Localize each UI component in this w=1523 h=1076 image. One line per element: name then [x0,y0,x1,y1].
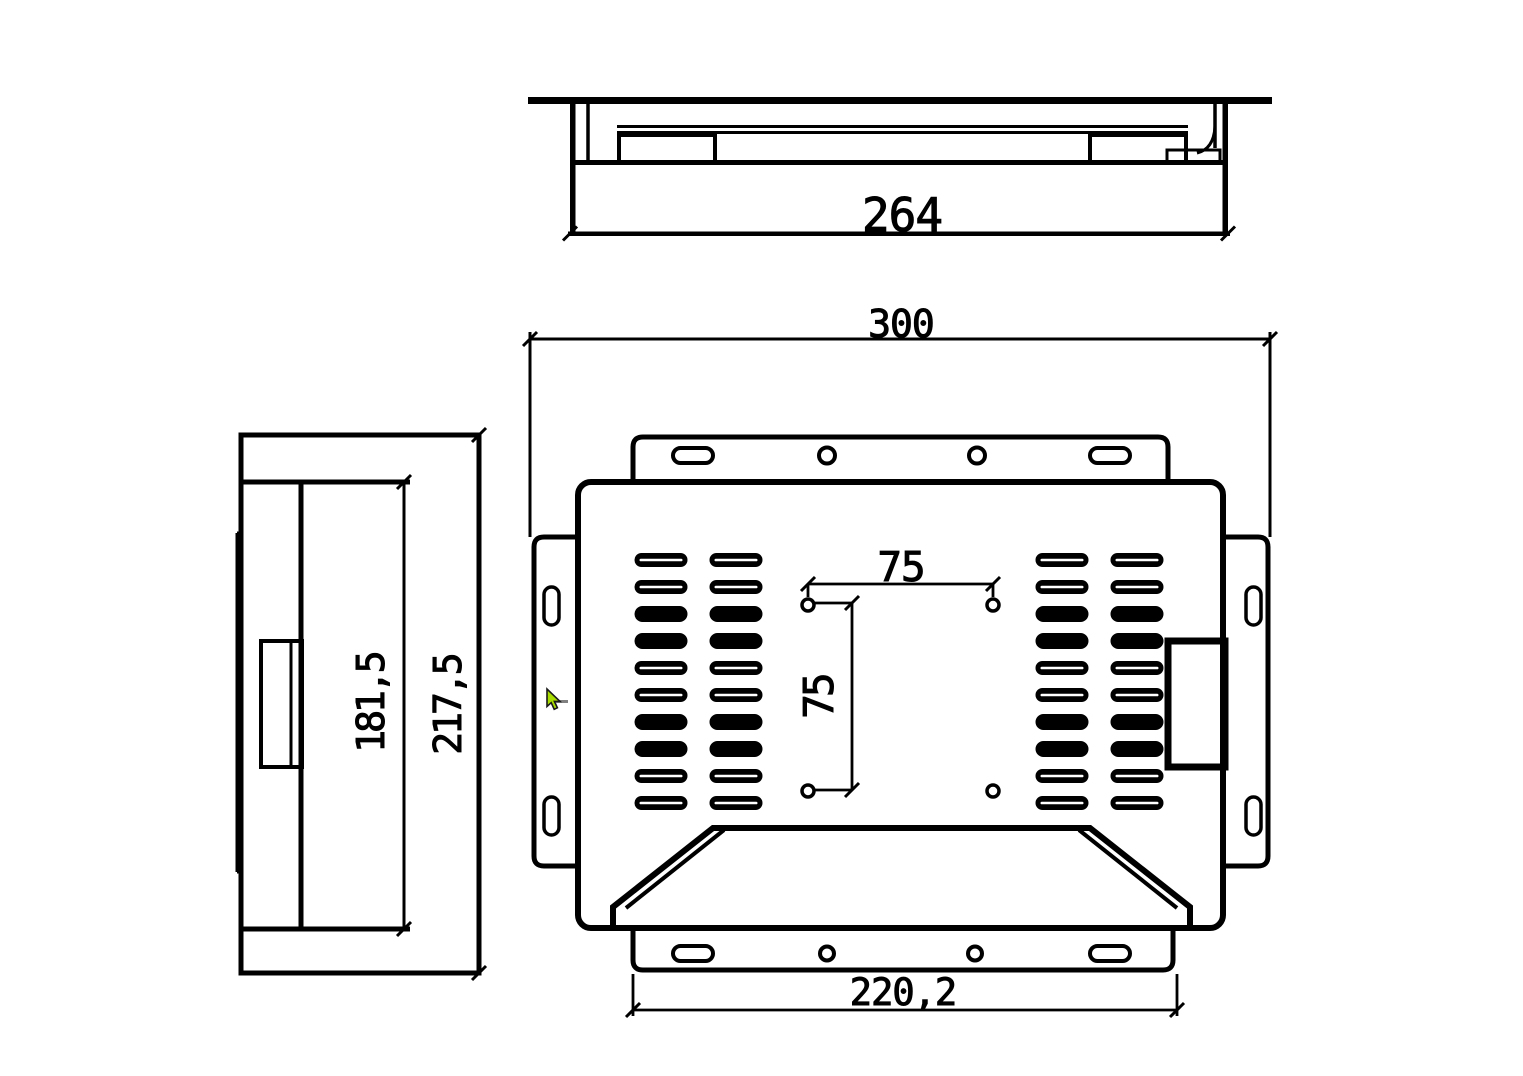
vent-slot [1036,607,1088,622]
vent-slot-inner [1040,801,1084,805]
vent-slot-inner [1115,558,1159,562]
dim-label-top-view-width: 264 [862,188,942,242]
vent-slot-inner [639,801,683,805]
left-ear-slot-top [544,587,559,625]
vesa-hole-top-left [802,599,814,611]
top-bracket-hole-left [819,448,835,464]
connector-box [1168,641,1225,767]
bottom-bracket-hole-right [968,947,982,961]
stand-bend-line-right [1079,830,1177,908]
vent-slot-inner [714,693,758,697]
vent-slot-inner [714,666,758,670]
top-bracket-slot-right [1090,448,1130,463]
vent-slot-inner [1115,693,1159,697]
vesa-hole-bottom-right [987,785,999,797]
rear-view: 300 75 75 [530,302,1270,1016]
vent-slot [635,607,687,622]
vent-slot-inner [1115,801,1159,805]
dim-label-overall-height: 217,5 [426,655,470,755]
vent-slot-inner [1115,585,1159,589]
cursor-icon [547,689,568,709]
vent-slot [635,715,687,730]
vent-slot-inner [639,558,683,562]
vent-slot-inner [1040,774,1084,778]
vent-slot-inner [1040,558,1084,562]
technical-drawing-canvas: 264 300 75 [0,0,1523,1076]
vent-slot [1111,742,1163,757]
cad-drawing-page: 264 300 75 [0,0,1523,1076]
stand-bend-line-left [626,830,724,908]
right-ear-slot-bottom [1246,797,1261,835]
vent-slot [1111,607,1163,622]
bottom-bracket-hole-left [820,947,834,961]
vent-slot [635,634,687,649]
right-ear-slot-top [1246,587,1261,625]
cursor-arrow [547,689,560,709]
vent-slot [1111,715,1163,730]
vent-slot [1036,742,1088,757]
vent-slot [1111,634,1163,649]
vent-slot [1036,715,1088,730]
vent-slot-inner [1040,585,1084,589]
dim-label-vesa-vertical: 75 [795,675,843,719]
dim-label-chassis-height: 181,5 [349,653,393,753]
vent-slot-inner [639,774,683,778]
top-view-left-wall [570,100,576,234]
vent-slot [710,607,762,622]
vent-slot [710,634,762,649]
vent-slot-inner [639,585,683,589]
vent-slot-inner [1115,666,1159,670]
dim-label-vesa-horizontal: 75 [877,543,924,591]
top-view-left-bracket [619,135,715,162]
bottom-bracket-slot-left [673,946,713,961]
vent-slot [635,742,687,757]
vent-slot [710,742,762,757]
top-bracket-slot-left [673,448,713,463]
vesa-hole-top-right [987,599,999,611]
bottom-bracket-slot-right [1090,946,1130,961]
vent-slot-inner [714,774,758,778]
vent-slot-inner [639,666,683,670]
dim-label-overall-width: 300 [868,302,934,346]
vesa-hole-bottom-left [802,785,814,797]
dim-label-bottom-mount-width: 220,2 [850,971,956,1014]
vent-slot [710,715,762,730]
vent-slot-inner [714,558,758,562]
side-view-connector-box [261,641,302,767]
top-view: 264 [528,97,1272,242]
vent-slot-inner [639,693,683,697]
side-view: 181,5 217,5 [237,435,479,973]
ventilation-slot-grid [635,554,1163,810]
front-bezel-flange [528,97,1272,104]
top-view-right-wall [1223,100,1229,234]
vent-slot-inner [714,801,758,805]
left-ear-slot-bottom [544,797,559,835]
stand-pressing-outline [613,828,1190,927]
top-bracket-hole-right [969,448,985,464]
vent-slot [1036,634,1088,649]
vent-slot-inner [1115,774,1159,778]
vent-slot-inner [1040,666,1084,670]
vent-slot-inner [714,585,758,589]
vent-slot-inner [1040,693,1084,697]
